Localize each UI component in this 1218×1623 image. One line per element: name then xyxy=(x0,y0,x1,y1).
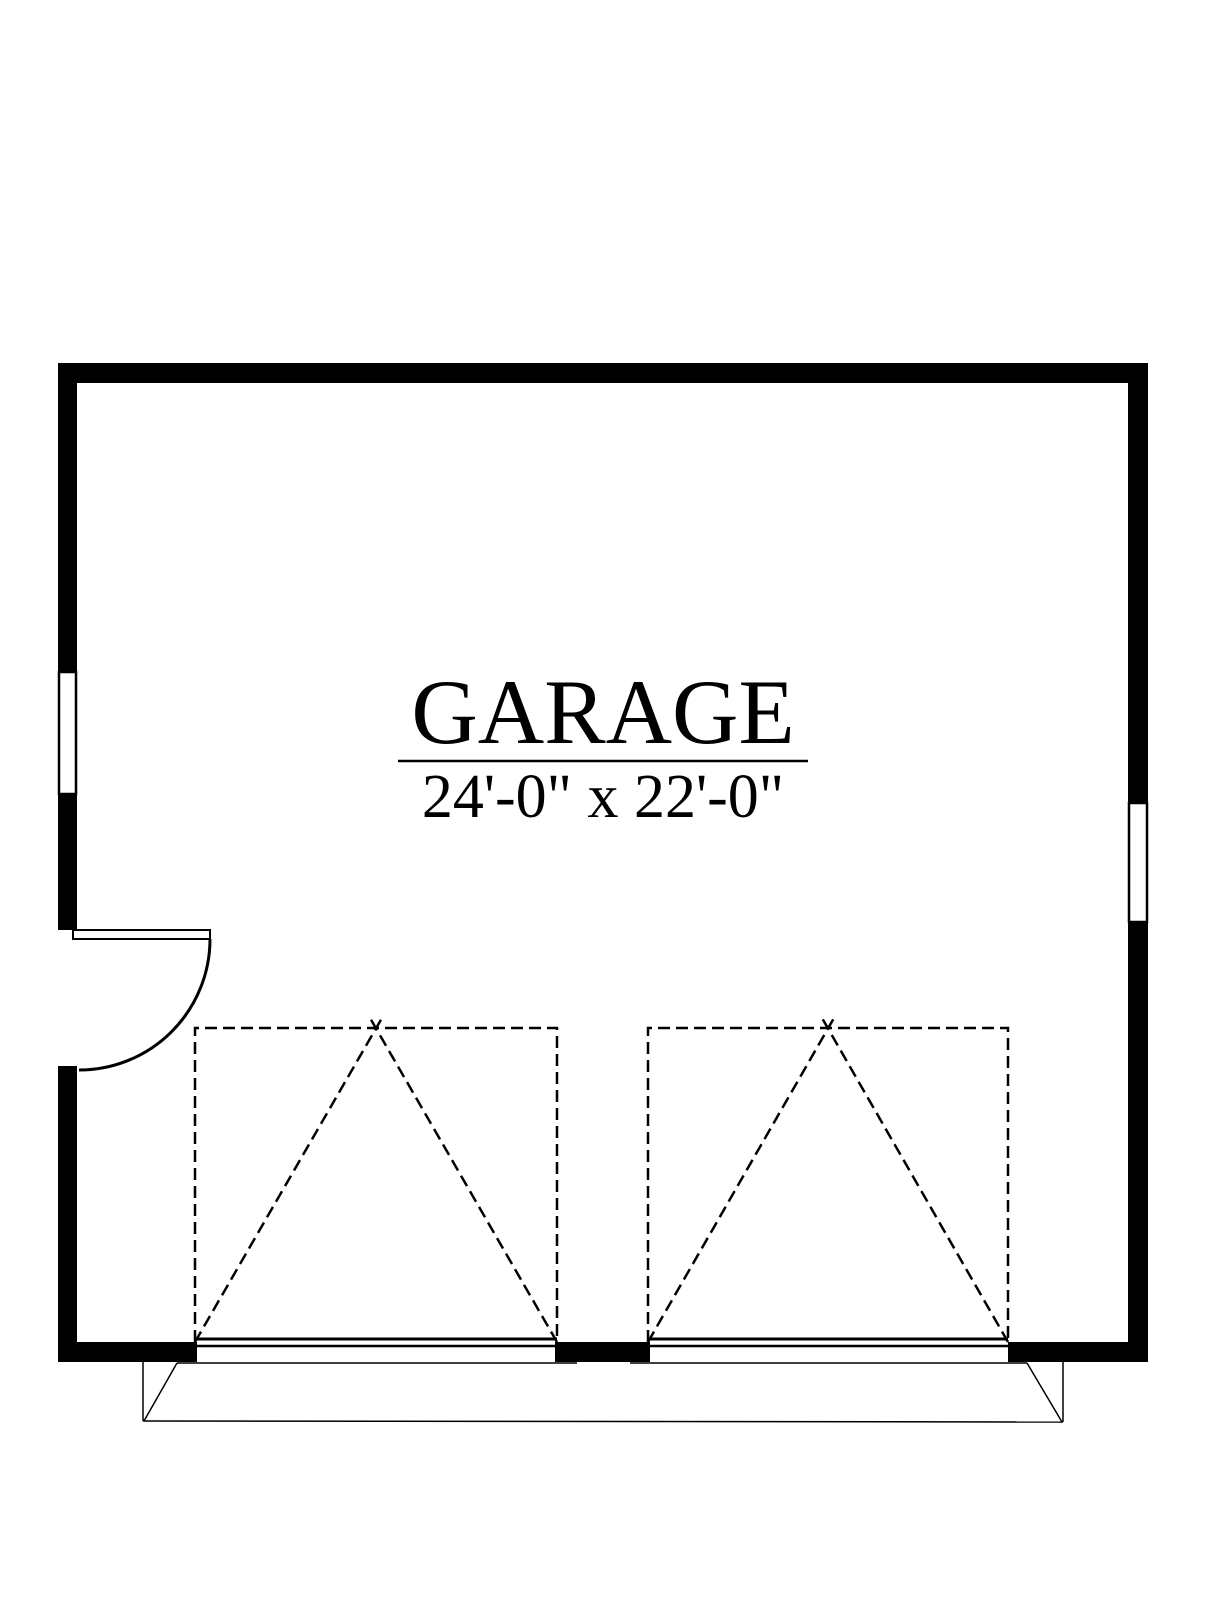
garage-door-left-icon xyxy=(195,1018,557,1342)
room-label: GARAGE xyxy=(411,661,794,763)
garage-door-right-icon xyxy=(648,1018,1008,1342)
entry-door xyxy=(73,930,210,1070)
wall-right-lower xyxy=(1128,922,1148,1362)
wall-top xyxy=(58,363,1148,383)
apron-right-flare xyxy=(1027,1363,1062,1422)
wall-bottom-right-pier xyxy=(1008,1342,1148,1362)
garage-door-outline xyxy=(195,1028,557,1342)
wall-bottom-center-pier xyxy=(555,1342,650,1362)
garage-door-outline xyxy=(648,1028,1008,1342)
garage-door-swing-line xyxy=(195,1018,382,1342)
room-dimensions-label: 24'-0" x 22'-0" xyxy=(422,763,784,831)
floor-plan-sheet: GARAGE 24'-0" x 22'-0" xyxy=(0,0,1218,1623)
garage-door-swing-line xyxy=(648,1018,834,1342)
apron-left-flare xyxy=(144,1363,177,1421)
wall-bottom-left-pier xyxy=(58,1342,197,1362)
garage-door-swing-line xyxy=(370,1018,557,1342)
apron-bottom-edge xyxy=(143,1421,1063,1422)
exterior-walls xyxy=(58,363,1148,1362)
door-swing-arc-icon xyxy=(79,939,210,1070)
door-panel-icon xyxy=(73,930,210,939)
window-right-icon xyxy=(1129,803,1147,922)
garage-door-swing-line xyxy=(822,1018,1008,1342)
wall-left-lower xyxy=(58,1066,77,1362)
garage-floor-plan: GARAGE 24'-0" x 22'-0" xyxy=(0,0,1218,1623)
wall-left-upper xyxy=(58,363,77,672)
window-left-icon xyxy=(59,672,76,794)
driveway-apron xyxy=(143,1362,1063,1422)
wall-left-middle xyxy=(58,794,77,930)
wall-right-upper xyxy=(1128,363,1148,803)
